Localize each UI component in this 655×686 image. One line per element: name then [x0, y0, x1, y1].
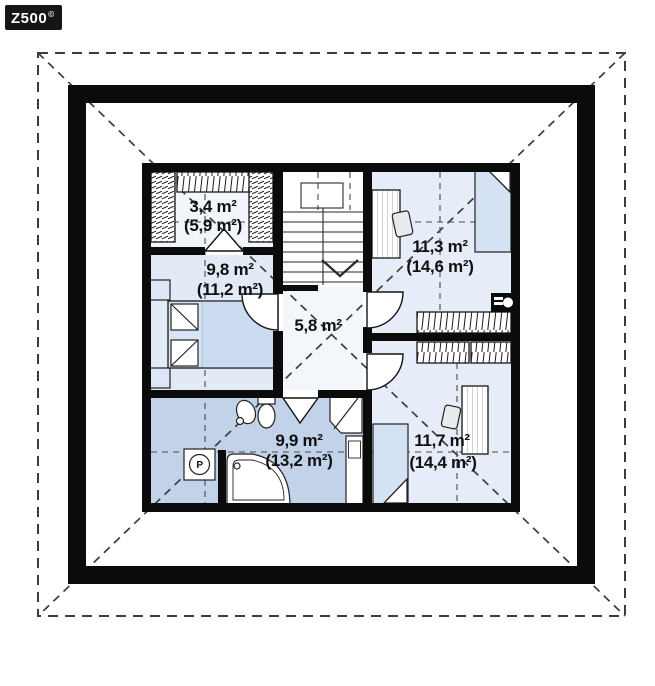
- nightstand: [149, 368, 170, 388]
- label-bedroom-left-total: (11,2 m²): [197, 280, 263, 299]
- label-hall-area: 5,8 m²: [294, 316, 342, 335]
- z500-logo-text: Z500: [11, 10, 47, 27]
- shower-cabin: [330, 394, 362, 433]
- label-bedroom-top-right-total: (14,6 m²): [406, 257, 473, 276]
- floor-plan-page: Z500©: [0, 0, 655, 686]
- label-bathroom-area: 9,9 m²: [275, 431, 323, 450]
- label-bedroom-bottom-right-area: 11,7 m²: [414, 431, 470, 450]
- label-bedroom-bottom-right-total: (14,4 m²): [409, 453, 476, 472]
- single-bed: [475, 168, 511, 252]
- tap: [234, 463, 240, 469]
- label-wardrobe-total: (5,9 m²): [184, 216, 242, 235]
- single-bed: [373, 424, 408, 504]
- bathroom-cabinet: [346, 436, 363, 504]
- wardrobe-closet-right: [249, 172, 273, 242]
- washing-machine-symbol: P: [196, 460, 203, 471]
- label-bedroom-left-area: 9,8 m²: [206, 260, 254, 279]
- toilet: [258, 397, 275, 428]
- label-bathroom-total: (13,2 m²): [265, 451, 332, 470]
- wardrobe-closet-row-lower: [417, 342, 511, 363]
- label-bedroom-top-right-area: 11,3 m²: [412, 237, 468, 256]
- label-wardrobe-area: 3,4 m²: [189, 197, 237, 216]
- room-hall-floor: [283, 287, 363, 390]
- copyright-icon: ©: [48, 10, 54, 19]
- floor-plan-drawing: 3,4 m² (5,9 m²) 9,8 m² (11,2 m²) 11,3 m²…: [0, 0, 655, 686]
- chimney-vent-block: [491, 293, 517, 312]
- bathtub-stub-wall: [218, 450, 226, 503]
- wardrobe-closet-row-upper: [417, 312, 511, 333]
- nightstand: [149, 280, 170, 300]
- wardrobe-closet-left: [151, 172, 175, 242]
- stair-stub-wall: [283, 285, 318, 291]
- z500-logo: Z500©: [5, 5, 62, 30]
